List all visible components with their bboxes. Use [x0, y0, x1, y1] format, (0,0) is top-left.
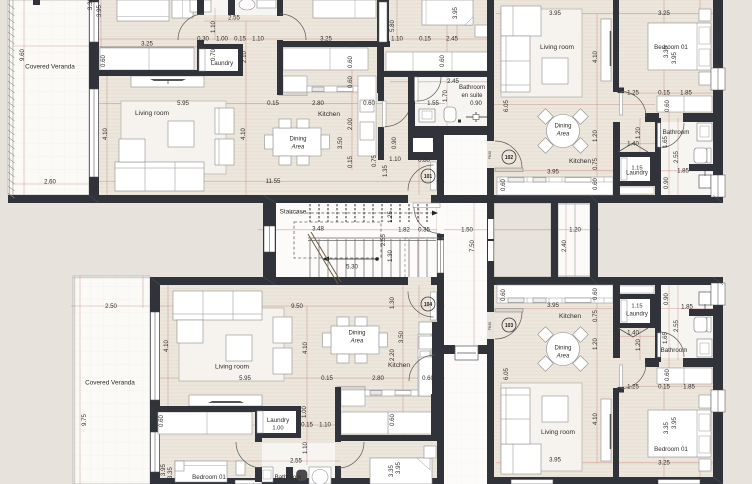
svg-text:0.70: 0.70 [210, 48, 217, 60]
svg-text:3.95: 3.95 [671, 51, 678, 63]
svg-text:Area: Area [350, 339, 364, 345]
svg-text:F8.50: F8.50 [488, 322, 492, 330]
svg-text:3.95: 3.95 [547, 302, 559, 309]
svg-text:104: 104 [424, 302, 433, 308]
svg-text:3.25: 3.25 [658, 10, 670, 17]
svg-text:Living room: Living room [215, 364, 250, 371]
svg-text:1.00: 1.00 [216, 36, 228, 43]
svg-text:Bathroom: Bathroom [661, 347, 688, 354]
svg-text:Bedroom 01: Bedroom 01 [654, 446, 688, 453]
svg-text:1.20: 1.20 [592, 129, 599, 141]
svg-text:3.50: 3.50 [398, 330, 405, 342]
svg-text:5.80: 5.80 [389, 19, 396, 31]
svg-text:1.55: 1.55 [427, 100, 439, 107]
svg-text:0.15: 0.15 [301, 422, 313, 429]
svg-text:F8.50: F8.50 [488, 151, 492, 159]
svg-text:1.25: 1.25 [627, 90, 639, 97]
svg-text:3.25: 3.25 [320, 36, 332, 43]
svg-text:3.95: 3.95 [96, 4, 103, 16]
svg-text:4.10: 4.10 [592, 50, 599, 62]
svg-text:en suite: en suite [461, 93, 483, 99]
svg-text:2.20: 2.20 [389, 348, 396, 360]
svg-text:1.20: 1.20 [592, 337, 599, 349]
svg-text:1.10: 1.10 [210, 20, 217, 32]
svg-text:2.45: 2.45 [446, 36, 458, 43]
svg-text:11.55: 11.55 [266, 178, 281, 185]
svg-text:2.50: 2.50 [105, 303, 117, 310]
svg-text:Dining: Dining [348, 331, 365, 337]
svg-text:0.15: 0.15 [234, 36, 246, 43]
svg-text:1.10: 1.10 [319, 422, 331, 429]
svg-text:4.10: 4.10 [592, 412, 599, 424]
svg-text:Dining: Dining [554, 346, 571, 352]
svg-text:4.10: 4.10 [102, 127, 109, 139]
svg-text:1.25: 1.25 [387, 210, 394, 222]
svg-text:3.95: 3.95 [547, 169, 559, 176]
svg-text:1.85: 1.85 [677, 168, 689, 175]
svg-text:0.60: 0.60 [664, 99, 671, 111]
svg-text:0.60: 0.60 [500, 178, 507, 190]
svg-text:2.80: 2.80 [312, 100, 324, 107]
svg-text:Kitchen: Kitchen [569, 158, 591, 165]
svg-text:0.60: 0.60 [100, 54, 107, 66]
svg-text:Living room: Living room [135, 110, 170, 117]
svg-text:Bathroom: Bathroom [275, 474, 302, 481]
svg-text:3.95: 3.95 [549, 457, 561, 464]
svg-text:0.80: 0.80 [418, 157, 430, 164]
svg-text:102: 102 [505, 155, 514, 161]
svg-text:Laundry: Laundry [626, 171, 648, 177]
svg-text:1.50: 1.50 [461, 227, 473, 234]
svg-text:9.60: 9.60 [19, 48, 26, 60]
svg-text:1.40: 1.40 [627, 141, 639, 148]
svg-text:1.20: 1.20 [569, 227, 581, 234]
svg-text:3.95: 3.95 [395, 461, 402, 473]
svg-text:3.95: 3.95 [452, 6, 459, 18]
svg-text:1.65: 1.65 [662, 331, 669, 343]
svg-text:5.95: 5.95 [177, 100, 189, 107]
svg-text:1.15: 1.15 [631, 304, 642, 310]
svg-text:1.40: 1.40 [627, 330, 639, 337]
svg-text:0.75: 0.75 [592, 157, 599, 169]
svg-text:0.60: 0.60 [664, 368, 671, 380]
svg-text:0.15: 0.15 [347, 155, 354, 167]
svg-text:Dining: Dining [289, 137, 306, 143]
svg-text:3.95: 3.95 [671, 416, 678, 428]
svg-text:0.30: 0.30 [197, 36, 209, 43]
svg-text:0.60: 0.60 [592, 177, 599, 189]
svg-text:0.15: 0.15 [658, 90, 670, 97]
svg-text:1.82: 1.82 [398, 227, 410, 234]
svg-text:9.50: 9.50 [291, 303, 303, 310]
svg-text:0.60: 0.60 [592, 287, 599, 299]
svg-text:Covered Veranda: Covered Veranda [85, 380, 135, 387]
svg-text:0.90: 0.90 [663, 292, 670, 304]
svg-text:0.35: 0.35 [418, 227, 430, 234]
svg-text:Laundry: Laundry [267, 417, 290, 424]
svg-text:5.95: 5.95 [239, 375, 251, 382]
svg-text:1.10: 1.10 [302, 441, 309, 453]
svg-text:Area: Area [556, 132, 570, 138]
svg-text:Dining: Dining [554, 124, 571, 130]
svg-text:2.55: 2.55 [290, 458, 302, 465]
svg-text:0.90: 0.90 [391, 136, 398, 148]
svg-text:1.10: 1.10 [252, 36, 264, 43]
svg-text:1.70: 1.70 [442, 89, 449, 101]
svg-text:Bathroom: Bathroom [459, 85, 485, 91]
svg-text:1.20: 1.20 [635, 338, 642, 350]
svg-text:1.10: 1.10 [391, 36, 403, 43]
svg-text:3.25: 3.25 [141, 41, 153, 48]
svg-text:1.85: 1.85 [683, 384, 695, 391]
svg-text:3.95: 3.95 [549, 10, 561, 17]
svg-text:4.10: 4.10 [163, 339, 170, 351]
svg-text:3.35: 3.35 [167, 466, 174, 478]
svg-text:2.55: 2.55 [380, 233, 387, 245]
svg-text:Area: Area [556, 354, 570, 360]
svg-text:2.55: 2.55 [228, 15, 240, 22]
svg-text:101: 101 [424, 174, 433, 180]
svg-text:0.15: 0.15 [419, 36, 431, 43]
svg-text:2.80: 2.80 [372, 375, 384, 382]
svg-text:0.60: 0.60 [439, 54, 446, 66]
svg-text:F8.50: F8.50 [438, 300, 442, 308]
svg-text:Living room: Living room [540, 44, 575, 51]
svg-text:1.10: 1.10 [389, 156, 401, 163]
svg-text:Kitchen: Kitchen [388, 362, 410, 369]
svg-text:Kitchen: Kitchen [559, 313, 581, 320]
svg-text:3.30: 3.30 [87, 0, 94, 10]
svg-text:1.20: 1.20 [635, 126, 642, 138]
svg-text:Bedroom 01: Bedroom 01 [654, 44, 688, 51]
svg-text:0.60: 0.60 [347, 55, 354, 67]
svg-text:103: 103 [505, 323, 514, 329]
svg-text:3.50: 3.50 [337, 136, 344, 148]
svg-text:Staircase: Staircase [280, 209, 307, 216]
svg-text:2.55: 2.55 [673, 150, 680, 162]
svg-text:1.35: 1.35 [382, 164, 389, 176]
svg-text:2.40: 2.40 [561, 239, 568, 251]
svg-text:Bedroom 01: Bedroom 01 [192, 474, 226, 481]
svg-text:0.90: 0.90 [663, 176, 670, 188]
svg-text:2.45: 2.45 [447, 78, 459, 85]
svg-text:5.30: 5.30 [346, 264, 358, 271]
svg-text:3.30: 3.30 [663, 45, 670, 57]
svg-text:1.85: 1.85 [681, 304, 693, 311]
svg-text:0.15: 0.15 [658, 384, 670, 391]
svg-text:1.00: 1.00 [301, 405, 308, 417]
svg-text:1.65: 1.65 [662, 135, 669, 147]
svg-text:0.60: 0.60 [363, 100, 375, 107]
svg-text:Covered Veranda: Covered Veranda [25, 64, 75, 71]
svg-text:2.00: 2.00 [347, 117, 354, 129]
svg-text:Kitchen: Kitchen [318, 111, 340, 118]
svg-text:Bathroom: Bathroom [663, 129, 690, 136]
svg-text:1.30: 1.30 [389, 296, 396, 308]
svg-text:2.60: 2.60 [44, 179, 56, 186]
svg-text:7.50: 7.50 [469, 239, 476, 251]
svg-text:Living room: Living room [541, 429, 576, 436]
svg-text:4.10: 4.10 [302, 341, 309, 353]
svg-text:3.35: 3.35 [663, 421, 670, 433]
svg-text:1.00: 1.00 [272, 426, 283, 432]
svg-text:0.75: 0.75 [371, 154, 378, 166]
svg-text:0.60: 0.60 [158, 414, 165, 426]
svg-text:1.30: 1.30 [387, 249, 394, 261]
svg-text:3.35: 3.35 [388, 464, 395, 476]
svg-text:0.90: 0.90 [470, 100, 482, 107]
svg-text:Area: Area [291, 145, 305, 151]
svg-text:6.05: 6.05 [503, 367, 510, 379]
svg-text:0.75: 0.75 [592, 309, 599, 321]
svg-text:2.55: 2.55 [673, 319, 680, 331]
svg-text:1.25: 1.25 [627, 384, 639, 391]
svg-text:0.15: 0.15 [267, 100, 279, 107]
svg-text:0.60: 0.60 [422, 375, 434, 382]
svg-text:0.60: 0.60 [389, 413, 396, 425]
svg-text:3.48: 3.48 [312, 226, 324, 233]
svg-text:0.60: 0.60 [347, 75, 354, 87]
svg-text:F8.50: F8.50 [438, 172, 442, 180]
svg-text:1.85: 1.85 [680, 90, 692, 97]
svg-text:3.25: 3.25 [658, 460, 670, 467]
svg-text:4.10: 4.10 [240, 127, 247, 139]
svg-text:Laundry: Laundry [626, 312, 648, 318]
svg-text:3.95: 3.95 [160, 463, 167, 475]
svg-text:0.15: 0.15 [321, 375, 333, 382]
svg-text:9.75: 9.75 [81, 413, 88, 425]
svg-text:2.10: 2.10 [241, 50, 248, 62]
svg-text:0.60: 0.60 [500, 288, 507, 300]
svg-text:6.05: 6.05 [503, 99, 510, 111]
